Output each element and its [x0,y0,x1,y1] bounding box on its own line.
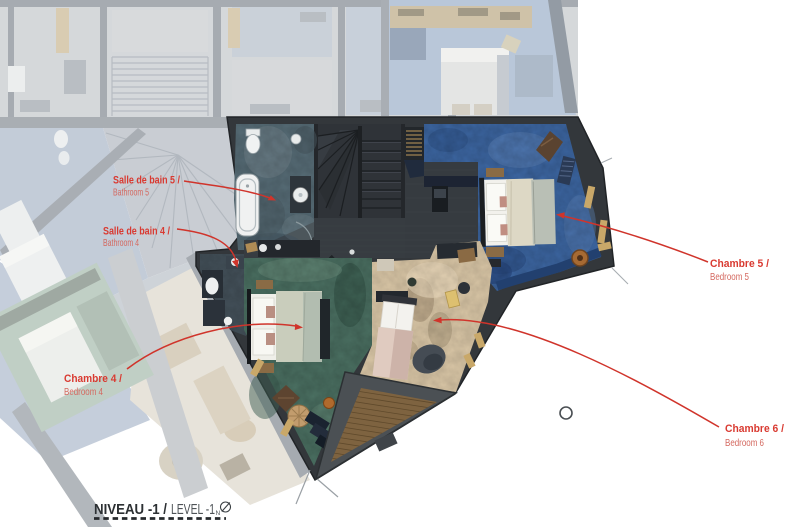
svg-text:Chambre 5 /: Chambre 5 / [710,258,769,270]
svg-text:Salle de bain 4 /: Salle de bain 4 / [103,226,170,238]
svg-text:Bedroom 5: Bedroom 5 [710,271,749,283]
svg-text:Bedroom 6: Bedroom 6 [725,437,764,449]
svg-text:Chambre 4 /: Chambre 4 / [64,373,122,385]
svg-text:N: N [216,510,221,517]
svg-text:Bathroom 4: Bathroom 4 [103,237,139,249]
svg-text:Chambre 6 /: Chambre 6 / [725,423,784,435]
svg-text:Bedroom 4: Bedroom 4 [64,386,103,398]
svg-text:Bathroom 5: Bathroom 5 [113,187,149,199]
svg-text:NIVEAU -1 /: NIVEAU -1 / [94,502,167,518]
svg-text:LEVEL -1: LEVEL -1 [171,502,215,518]
svg-text:Salle de bain 5 /: Salle de bain 5 / [113,175,180,187]
